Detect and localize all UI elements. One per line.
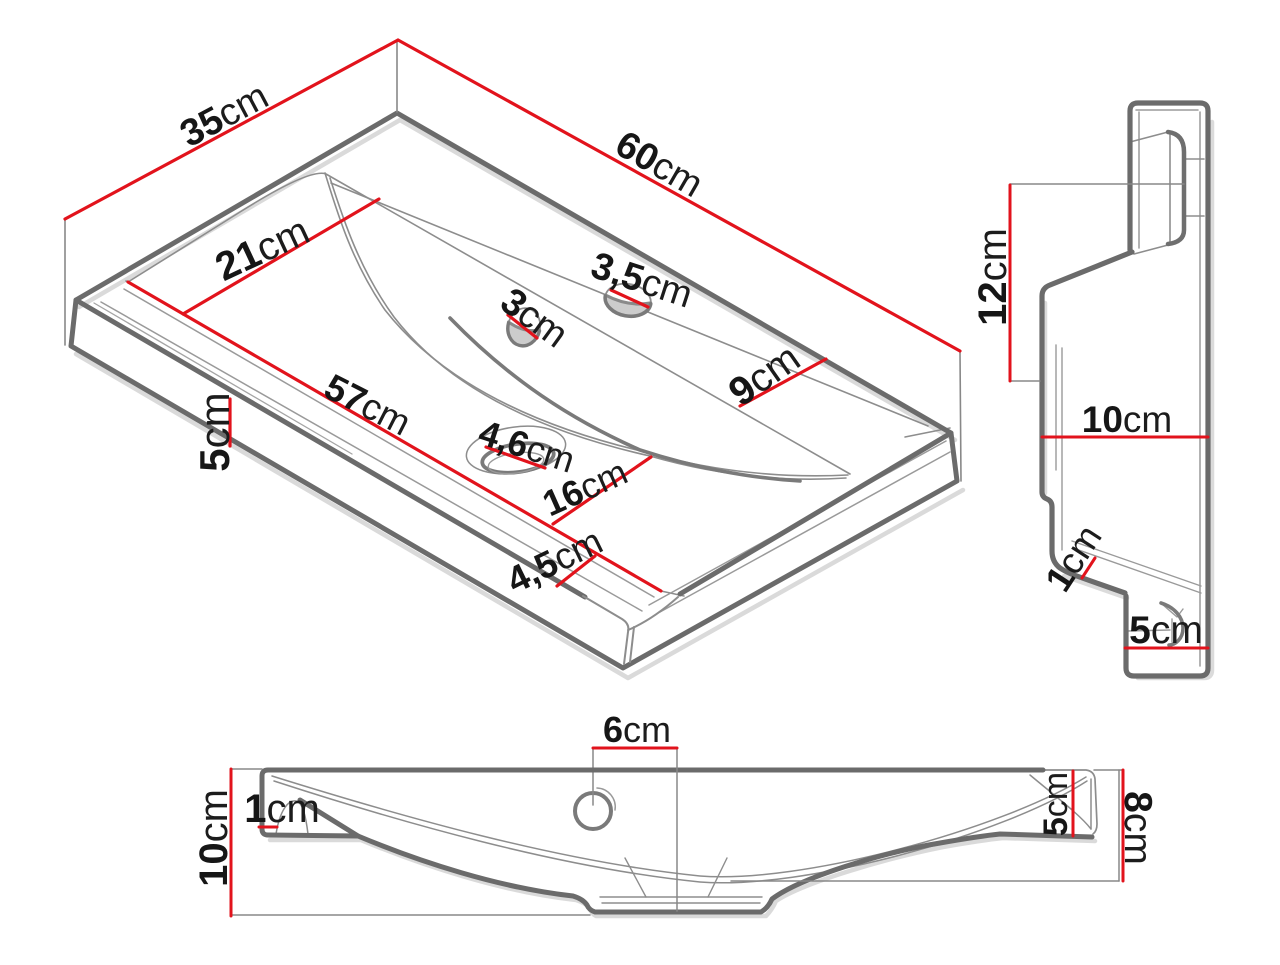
svg-text:57cm: 57cm — [318, 366, 417, 444]
svg-text:1cm: 1cm — [244, 787, 320, 831]
svg-text:8cm: 8cm — [1116, 791, 1159, 865]
svg-text:4,5cm: 4,5cm — [500, 520, 609, 601]
svg-text:5cm: 5cm — [1129, 609, 1203, 652]
svg-text:5cm: 5cm — [1037, 772, 1075, 836]
svg-text:10cm: 10cm — [1082, 399, 1172, 440]
svg-text:6cm: 6cm — [603, 709, 671, 750]
svg-text:10cm: 10cm — [192, 789, 236, 887]
svg-text:12cm: 12cm — [971, 228, 1015, 326]
svg-text:5cm: 5cm — [191, 392, 238, 471]
svg-text:60cm: 60cm — [608, 123, 709, 206]
svg-text:3cm: 3cm — [493, 280, 576, 356]
svg-text:35cm: 35cm — [173, 75, 275, 156]
